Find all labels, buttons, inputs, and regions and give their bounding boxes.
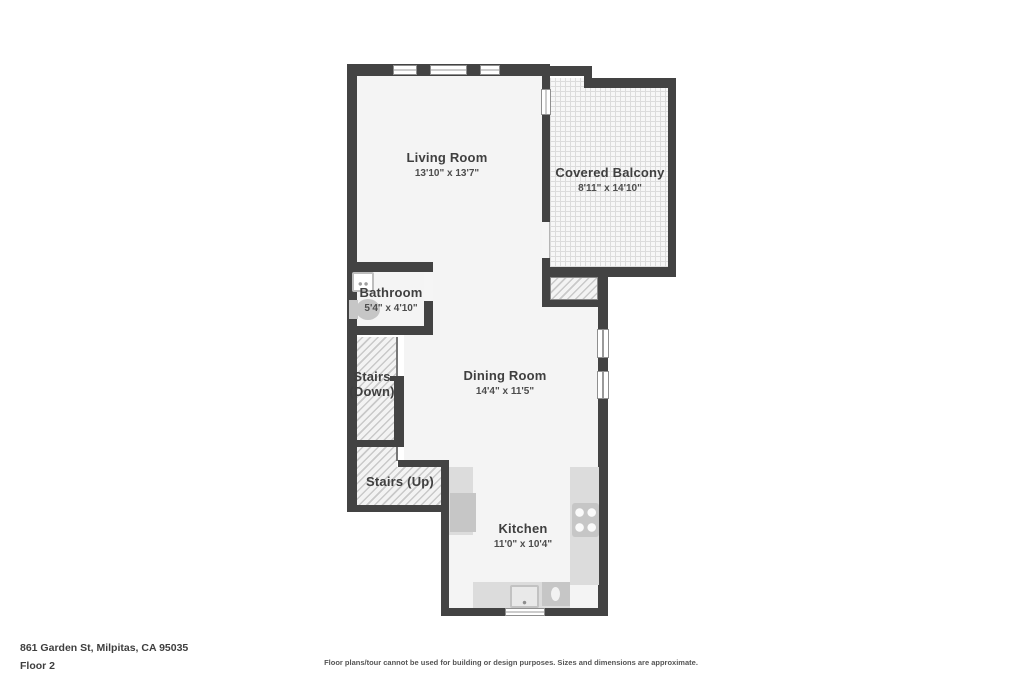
bathroom-label: Bathroom 5'4" x 4'10" — [360, 286, 423, 314]
wall-bathroom-bottom — [347, 326, 433, 335]
stove-fixture — [572, 503, 599, 537]
dining-room-label: Dining Room 14'4" x 11'5" — [463, 369, 546, 397]
wall-stairs-bottom — [347, 505, 449, 512]
room-name: Stairs (Up) — [366, 475, 434, 490]
room-name: Dining Room — [463, 369, 546, 384]
bathroom-door-opening — [424, 272, 433, 301]
living-room-label: Living Room 13'10" x 13'7" — [407, 151, 488, 179]
property-address: 861 Garden St, Milpitas, CA 95035 — [20, 642, 188, 654]
room-name-line2: (Down) — [349, 385, 394, 400]
window — [597, 329, 609, 358]
wall-living-right-upper — [542, 64, 550, 90]
wall-living-right-mid — [542, 114, 550, 222]
wall-right-main — [598, 277, 608, 616]
dishwasher-fixture — [542, 582, 570, 606]
dishwasher-oval — [551, 587, 560, 601]
wall-stairs-down-right — [394, 376, 404, 447]
wall-bathroom-top — [347, 262, 433, 272]
disclaimer-text: Floor plans/tour cannot be used for buil… — [324, 658, 698, 667]
stair-edge-line — [396, 337, 398, 378]
wall-balcony-right — [668, 78, 676, 277]
kitchen-label: Kitchen 11'0" x 10'4" — [494, 522, 552, 550]
kitchen-sink-fixture — [510, 585, 539, 608]
room-dimensions: 13'10" x 13'7" — [407, 168, 488, 180]
balcony-ledge-hatch — [550, 277, 598, 300]
room-dimensions: 5'4" x 4'10" — [360, 303, 423, 315]
room-dimensions: 8'11" x 14'10" — [555, 183, 664, 195]
wall-balcony-top-right — [584, 78, 676, 88]
floor-plan: Living Room 13'10" x 13'7" Covered Balco… — [0, 0, 1024, 683]
stairs-down-label: Stairs (Down) — [349, 370, 394, 400]
covered-balcony-label: Covered Balcony 8'11" x 14'10" — [555, 166, 664, 194]
room-dimensions: 14'4" x 11'5" — [463, 386, 546, 398]
room-name: Bathroom — [360, 286, 423, 301]
window — [541, 89, 551, 115]
window — [393, 65, 417, 75]
room-name: Stairs — [349, 370, 394, 385]
stair-edge-line — [396, 447, 398, 461]
floor-number-label: Floor 2 — [20, 660, 55, 672]
balcony-door-opening — [542, 222, 550, 258]
refrigerator-fixture — [450, 493, 476, 532]
wall-kitchen-left — [441, 460, 449, 616]
wall-balcony-bottom — [545, 267, 676, 277]
room-name: Kitchen — [494, 522, 552, 537]
room-dimensions: 11'0" x 10'4" — [494, 539, 552, 551]
window — [430, 65, 467, 75]
window — [480, 65, 500, 75]
room-name: Covered Balcony — [555, 166, 664, 181]
window — [505, 608, 545, 616]
stairs-up-label: Stairs (Up) — [366, 475, 434, 490]
floor-plan-page: Living Room 13'10" x 13'7" Covered Balco… — [0, 0, 1024, 683]
window — [597, 371, 609, 399]
room-name: Living Room — [407, 151, 488, 166]
